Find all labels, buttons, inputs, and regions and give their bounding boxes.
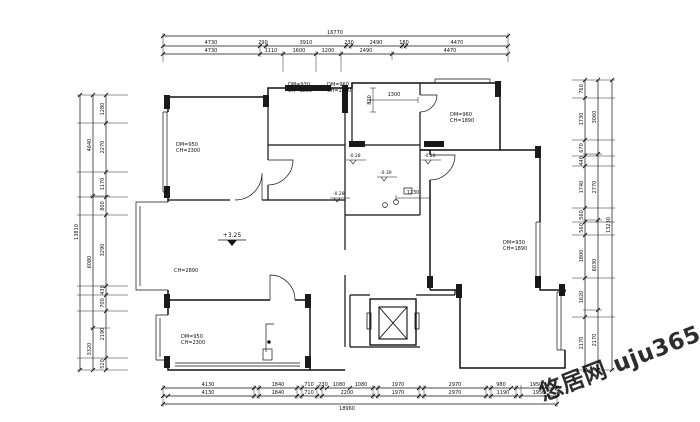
dim-value: 2170 [579,337,585,350]
dim-value: 800 [100,201,106,211]
dim-value: 1170 [100,178,106,191]
dim-value: 4130 [202,382,215,388]
dim-value: 1970 [392,390,405,396]
dim-value: 430 [100,285,106,295]
dim-value: 4470 [451,40,464,46]
dim-value: 3910 [300,40,313,46]
dim-value: 2970 [449,390,462,396]
dim-value: 6030 [592,259,598,272]
dim-value: 710 [304,382,314,388]
dim-value: 2770 [592,181,598,194]
dim-value: 1620 [579,291,585,304]
dim-value: 700 [100,298,106,308]
level-marker-text: +3.25 [223,232,242,239]
dim-value: 2270 [100,141,106,154]
window-label: CH=2300 [181,340,205,346]
dim-value: 1840 [272,382,285,388]
dim-value: 1110 [265,48,278,54]
level-marker-text: -0.28 [349,153,361,159]
interior-walls [168,83,455,347]
dim-value: 1800 [579,250,585,263]
dim-value: 230 [344,40,354,46]
dim-values-right: 760 1730 670 440 1740 560 560 1800 1620 … [579,84,612,349]
dim-value: 1730 [579,113,585,126]
dim-value: 16770 [327,30,343,36]
window-label: CH=1900 [327,88,351,94]
dim-value: 1300 [388,92,401,98]
dim-value: 3060 [592,111,598,124]
floorplan-drawing: +3.25 -0.28 -0.28 -0.28 -0.39 1300 1230 … [0,0,700,422]
dimension-lines-bottom [161,385,559,407]
dim-value: 1080 [355,382,368,388]
dim-value: 560 [579,223,585,233]
elevator-shaft [367,299,419,345]
window-label: CH=1890 [503,246,527,252]
dim-value: 560 [579,210,585,220]
level-marker-text: -0.28 [424,153,436,159]
dim-value: 1740 [579,181,585,194]
dim-value: 440 [579,156,585,166]
dim-value: 230 [318,382,328,388]
window-label: CH=1890 [288,88,312,94]
dim-value: 4130 [202,390,215,396]
dim-value: 1970 [392,382,405,388]
dim-value: 290 [258,40,268,46]
level-marker-text: -0.39 [380,170,392,176]
dim-value: 2970 [449,382,462,388]
dim-value: 3290 [100,244,106,257]
dim-value: 4730 [205,40,218,46]
dim-value: 670 [579,143,585,153]
dim-value: 4470 [444,48,457,54]
dim-value: 18960 [339,406,355,412]
dim-value: 820 [367,95,373,105]
dim-value: 1840 [272,390,285,396]
dim-value: 3320 [87,343,93,356]
window-label: CH=1890 [450,118,474,124]
dim-values-left: 13810 4640 6080 3320 1280 2270 1170 800 … [74,103,106,369]
floorplan-canvas: +3.25 -0.28 -0.28 -0.28 -0.39 1300 1230 … [0,0,700,422]
dim-value: 4730 [205,48,218,54]
dim-value: 2490 [370,40,383,46]
dim-value: 13810 [74,224,80,240]
dim-value: 1190 [497,390,510,396]
dim-value: 2190 [100,328,106,341]
dim-value: 2200 [341,390,354,396]
window-label: CH=2300 [176,148,200,154]
dim-value: 2490 [360,48,373,54]
ceiling-height-label: CH=2890 [174,268,198,274]
exterior-walls [168,83,565,370]
dim-value: 1080 [333,382,346,388]
dim-value: 1280 [100,103,106,116]
dim-value: 6080 [87,256,93,269]
watermark: 悠居网 uju365.com [535,297,700,407]
dim-value: 13230 [606,217,612,233]
dim-value: 2170 [592,334,598,347]
wall-hatch [164,81,565,368]
dim-value: 980 [496,382,506,388]
plumbing-fixtures [263,188,412,360]
dim-value: 1600 [293,48,306,54]
dim-value: 710 [304,390,314,396]
dim-value: 1200 [322,48,335,54]
dim-value: 1230 [407,190,420,196]
level-markers [218,160,441,246]
dim-value: 760 [579,84,585,94]
level-marker-text: -0.28 [333,191,345,197]
dim-value: 4640 [87,139,93,152]
dim-values-top: 16770 4730 290 3910 230 2490 180 4470 47… [205,30,464,54]
dim-value: 180 [399,40,409,46]
dim-value: 520 [100,359,106,369]
